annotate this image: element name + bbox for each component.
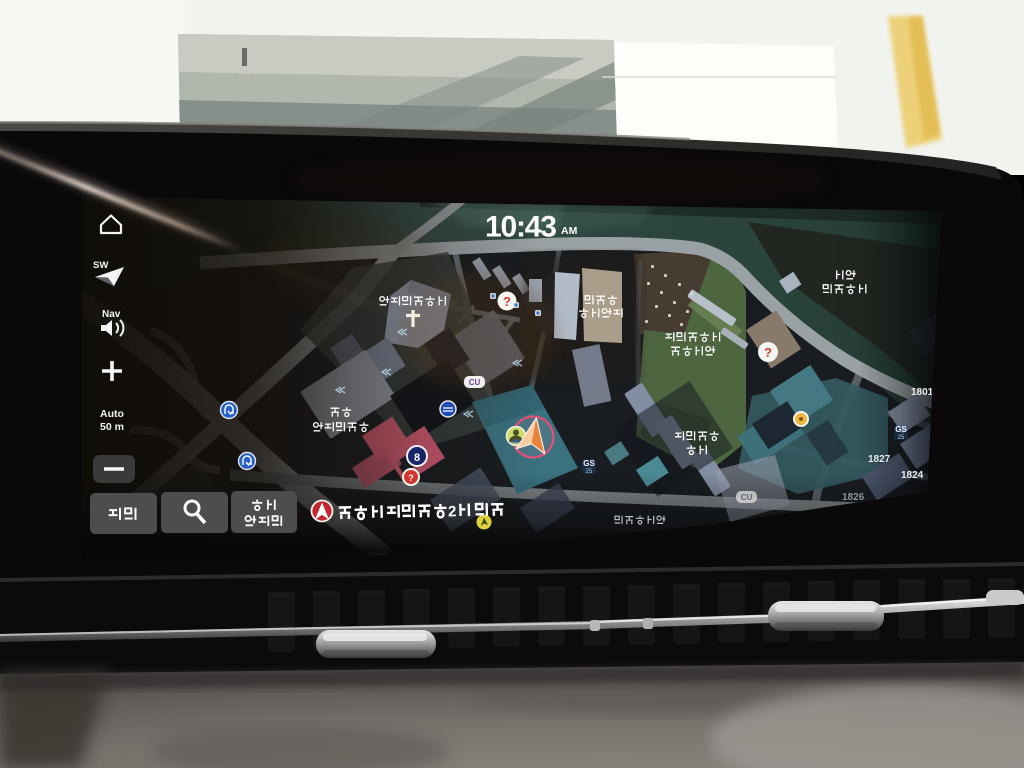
svg-text:1826: 1826 [842, 492, 865, 503]
svg-text:SW: SW [93, 260, 108, 271]
svg-text:25: 25 [898, 435, 905, 441]
svg-text:GS: GS [583, 459, 595, 468]
svg-text:CU: CU [741, 493, 753, 502]
svg-text:25: 25 [586, 469, 593, 475]
svg-text:1824: 1824 [901, 470, 924, 481]
svg-text:AM: AM [561, 225, 578, 237]
svg-text:50 m: 50 m [100, 421, 124, 433]
svg-text:1827: 1827 [868, 454, 891, 465]
svg-text:8: 8 [414, 452, 420, 464]
svg-text:Nav: Nav [102, 309, 121, 320]
svg-text:Auto: Auto [100, 408, 124, 420]
svg-text:1801: 1801 [911, 387, 934, 398]
svg-text:?: ? [408, 473, 414, 483]
svg-text:?: ? [764, 345, 772, 360]
svg-text:?: ? [503, 294, 511, 309]
svg-text:10:43: 10:43 [485, 211, 556, 244]
svg-text:2: 2 [448, 503, 457, 520]
svg-text:CU: CU [469, 378, 481, 387]
svg-text:GS: GS [895, 425, 907, 434]
